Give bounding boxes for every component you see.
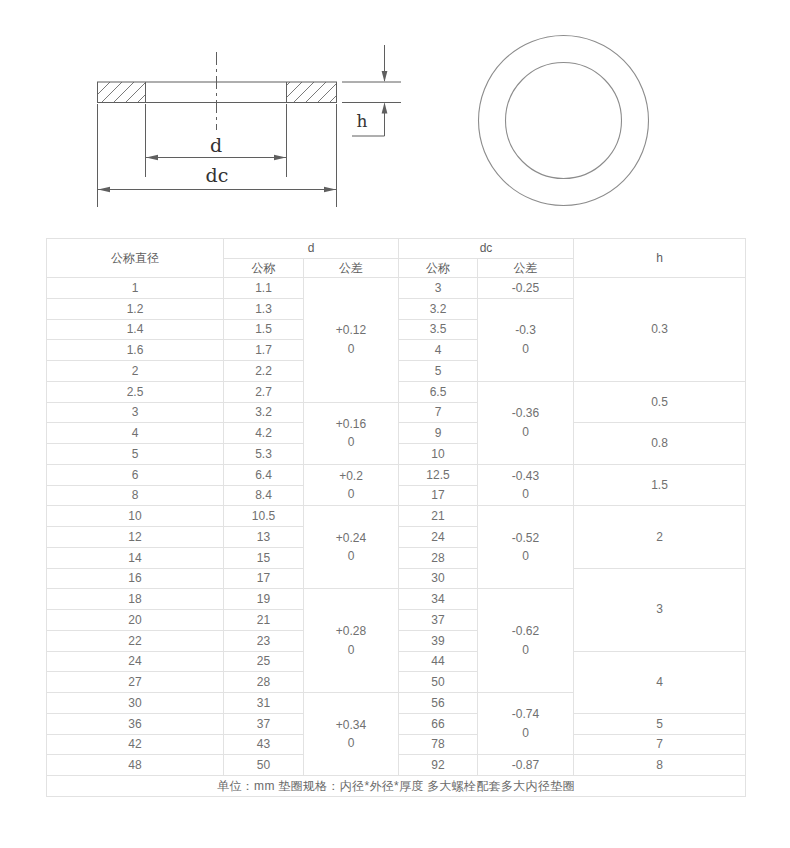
cell-h: 2: [574, 506, 746, 568]
cell-nominal-diameter: 24: [47, 651, 224, 672]
cell-dc-nominal: 21: [399, 506, 478, 527]
cell-d-nominal: 43: [224, 734, 304, 755]
cell-nominal-diameter: 30: [47, 693, 224, 714]
table-row: 1010.5+0.24 021-0.52 02: [47, 506, 746, 527]
cell-nominal-diameter: 8: [47, 485, 224, 506]
col-header-h: h: [574, 239, 746, 278]
cell-dc-nominal: 24: [399, 527, 478, 548]
arrow-right-icon: [274, 155, 286, 161]
table-row: 11.1+0.12 03-0.250.3: [47, 278, 746, 299]
cell-dc-tolerance: -0.3 0: [478, 298, 574, 381]
cell-h: 0.8: [574, 423, 746, 465]
cell-nominal-diameter: 2: [47, 361, 224, 382]
cell-d-nominal: 23: [224, 630, 304, 651]
outer-diameter-circle: [479, 36, 649, 206]
cell-d-nominal: 17: [224, 568, 304, 589]
cell-d-tolerance: +0.34 0: [304, 693, 399, 776]
cell-d-nominal: 1.5: [224, 319, 304, 340]
col-header-d-tolerance: 公差: [304, 258, 399, 278]
cell-nominal-diameter: 12: [47, 527, 224, 548]
cell-nominal-diameter: 2.5: [47, 381, 224, 402]
cell-dc-nominal: 78: [399, 734, 478, 755]
cell-d-nominal: 50: [224, 755, 304, 776]
cell-d-nominal: 6.4: [224, 464, 304, 485]
arrow-right-icon: [324, 187, 336, 193]
cell-nominal-diameter: 36: [47, 713, 224, 734]
cell-dc-nominal: 92: [399, 755, 478, 776]
cell-d-tolerance: +0.28 0: [304, 589, 399, 693]
cell-dc-nominal: 39: [399, 630, 478, 651]
cell-dc-tolerance: -0.36 0: [478, 381, 574, 464]
header-row-1: 公称直径 d dc h: [47, 239, 746, 259]
cell-dc-nominal: 28: [399, 547, 478, 568]
cell-h: 5: [574, 713, 746, 734]
cell-nominal-diameter: 18: [47, 589, 224, 610]
cell-nominal-diameter: 1: [47, 278, 224, 299]
cell-dc-nominal: 7: [399, 402, 478, 423]
cell-d-nominal: 2.7: [224, 381, 304, 402]
col-header-d-group: d: [224, 239, 399, 259]
cell-d-tolerance: +0.16 0: [304, 402, 399, 464]
cell-d-nominal: 1.3: [224, 298, 304, 319]
cell-d-nominal: 13: [224, 527, 304, 548]
cell-dc-nominal: 12.5: [399, 464, 478, 485]
spec-sheet-page: d dc h 公称直径 d dc h 公称: [0, 0, 790, 848]
cell-h: 4: [574, 651, 746, 713]
cell-h: 0.3: [574, 278, 746, 382]
spec-table-body: 11.1+0.12 03-0.250.31.21.33.2-0.3 01.41.…: [47, 278, 746, 776]
cell-d-nominal: 28: [224, 672, 304, 693]
hatched-right-section: [287, 82, 337, 103]
cell-nominal-diameter: 5: [47, 444, 224, 465]
cell-dc-nominal: 17: [399, 485, 478, 506]
cell-d-nominal: 3.2: [224, 402, 304, 423]
arrow-left-icon: [98, 187, 110, 193]
cell-d-nominal: 5.3: [224, 444, 304, 465]
cell-d-tolerance: +0.24 0: [304, 506, 399, 589]
cell-dc-nominal: 3.2: [399, 298, 478, 319]
hatched-left-section: [98, 82, 146, 103]
dimension-label-h: h: [357, 111, 368, 131]
cell-nominal-diameter: 22: [47, 630, 224, 651]
cell-dc-tolerance: -0.74 0: [478, 693, 574, 755]
cell-nominal-diameter: 16: [47, 568, 224, 589]
cell-h: 7: [574, 734, 746, 755]
cell-h: 0.5: [574, 381, 746, 423]
cell-dc-nominal: 44: [399, 651, 478, 672]
cell-dc-tolerance: -0.62 0: [478, 589, 574, 693]
cell-h: 8: [574, 755, 746, 776]
cell-dc-nominal: 10: [399, 444, 478, 465]
front-view: [479, 36, 649, 206]
cell-dc-nominal: 56: [399, 693, 478, 714]
table-row: 66.4+0.2 012.5-0.43 01.5: [47, 464, 746, 485]
cell-d-tolerance: +0.12 0: [304, 278, 399, 403]
cell-d-nominal: 25: [224, 651, 304, 672]
cell-d-nominal: 10.5: [224, 506, 304, 527]
cell-h: 3: [574, 568, 746, 651]
cell-dc-nominal: 66: [399, 713, 478, 734]
cell-d-nominal: 21: [224, 610, 304, 631]
cell-d-nominal: 8.4: [224, 485, 304, 506]
cell-nominal-diameter: 6: [47, 464, 224, 485]
cell-dc-tolerance: -0.43 0: [478, 464, 574, 506]
cell-dc-nominal: 37: [399, 610, 478, 631]
washer-technical-drawing: d dc h: [0, 0, 790, 236]
cell-nominal-diameter: 3: [47, 402, 224, 423]
washer-spec-table: 公称直径 d dc h 公称 公差 公称 公差 11.1+0.12 03-0.2…: [46, 238, 746, 797]
cell-dc-nominal: 30: [399, 568, 478, 589]
cell-dc-nominal: 3: [399, 278, 478, 299]
col-header-dc-nominal: 公称: [399, 258, 478, 278]
inner-diameter-circle: [506, 63, 622, 179]
dimension-label-dc: dc: [206, 164, 229, 186]
cell-d-tolerance: +0.2 0: [304, 464, 399, 506]
cell-nominal-diameter: 1.4: [47, 319, 224, 340]
col-header-dc-group: dc: [399, 239, 574, 259]
arrow-down-icon: [382, 71, 388, 82]
cell-d-nominal: 31: [224, 693, 304, 714]
cell-dc-tolerance: -0.25: [478, 278, 574, 299]
cell-nominal-diameter: 48: [47, 755, 224, 776]
cell-nominal-diameter: 42: [47, 734, 224, 755]
cell-nominal-diameter: 4: [47, 423, 224, 444]
footer-row: 单位：mm 垫圈规格：内径*外径*厚度 多大螺栓配套多大内径垫圈: [47, 776, 746, 797]
cell-d-nominal: 15: [224, 547, 304, 568]
col-header-nominal-diameter: 公称直径: [47, 239, 224, 278]
cell-d-nominal: 1.1: [224, 278, 304, 299]
cell-dc-nominal: 3.5: [399, 319, 478, 340]
cell-d-nominal: 2.2: [224, 361, 304, 382]
cell-nominal-diameter: 1.6: [47, 340, 224, 361]
cell-dc-tolerance: -0.87: [478, 755, 574, 776]
cell-dc-nominal: 5: [399, 361, 478, 382]
cell-dc-tolerance: -0.52 0: [478, 506, 574, 589]
cell-nominal-diameter: 20: [47, 610, 224, 631]
col-header-d-nominal: 公称: [224, 258, 304, 278]
cell-dc-nominal: 6.5: [399, 381, 478, 402]
cell-dc-nominal: 9: [399, 423, 478, 444]
unit-note: 单位：mm 垫圈规格：内径*外径*厚度 多大螺栓配套多大内径垫圈: [47, 776, 746, 797]
cell-dc-nominal: 50: [399, 672, 478, 693]
cell-nominal-diameter: 1.2: [47, 298, 224, 319]
cell-nominal-diameter: 10: [47, 506, 224, 527]
cell-d-nominal: 19: [224, 589, 304, 610]
cell-nominal-diameter: 27: [47, 672, 224, 693]
cell-nominal-diameter: 14: [47, 547, 224, 568]
cell-d-nominal: 37: [224, 713, 304, 734]
cross-section-view: [98, 45, 402, 207]
cell-d-nominal: 4.2: [224, 423, 304, 444]
cell-h: 1.5: [574, 464, 746, 506]
arrow-up-icon: [382, 103, 388, 114]
cell-dc-nominal: 4: [399, 340, 478, 361]
spec-table-container: 公称直径 d dc h 公称 公差 公称 公差 11.1+0.12 03-0.2…: [46, 238, 746, 797]
dimension-label-d: d: [210, 134, 222, 156]
cell-d-nominal: 1.7: [224, 340, 304, 361]
cell-dc-nominal: 34: [399, 589, 478, 610]
arrow-left-icon: [146, 155, 158, 161]
col-header-dc-tolerance: 公差: [478, 258, 574, 278]
